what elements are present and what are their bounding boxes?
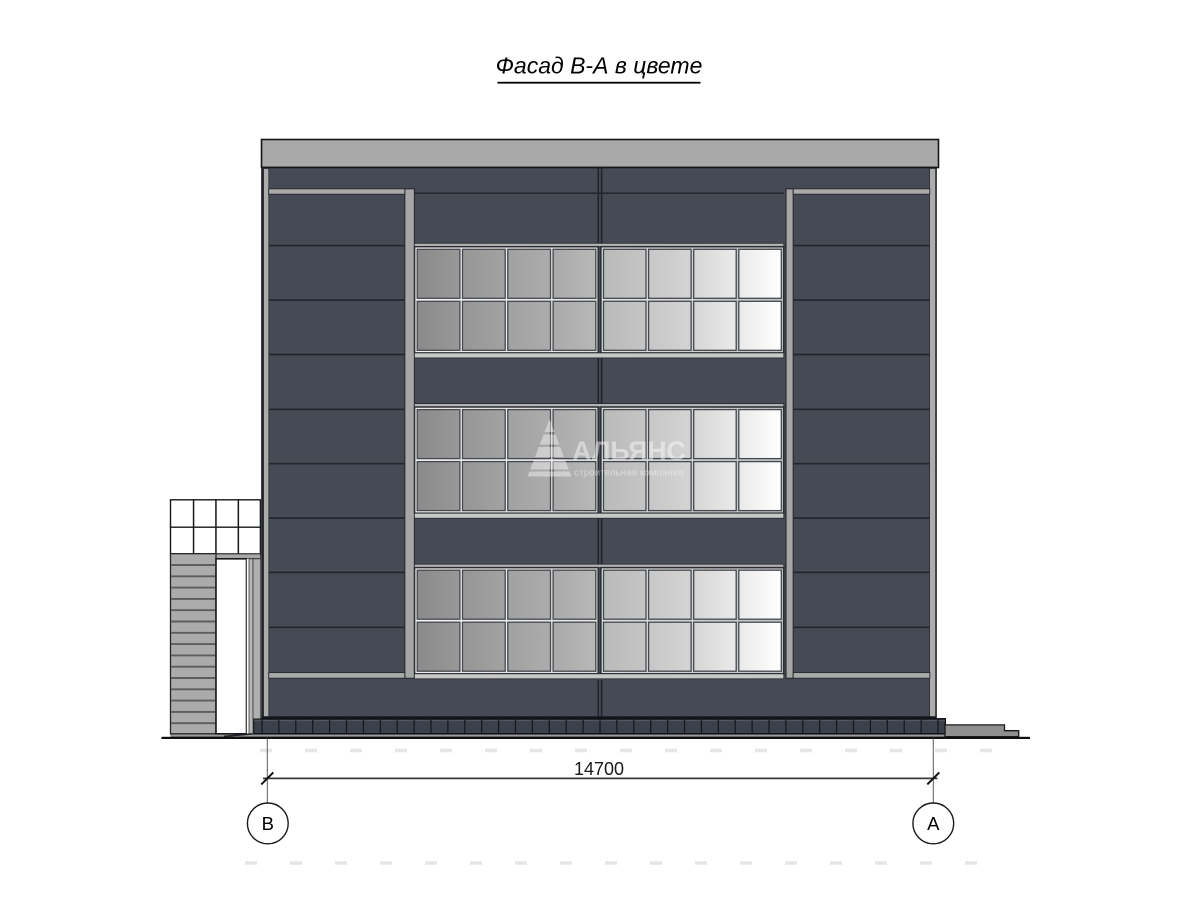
svg-text:14700: 14700 [574, 759, 624, 779]
svg-text:А: А [927, 813, 940, 834]
svg-text:строительная компания: строительная компания [574, 468, 683, 479]
svg-text:АЛЬЯНС: АЛЬЯНС [572, 436, 685, 466]
svg-text:В: В [262, 813, 274, 834]
svg-text:Фасад В-А в цвете: Фасад В-А в цвете [496, 53, 703, 79]
